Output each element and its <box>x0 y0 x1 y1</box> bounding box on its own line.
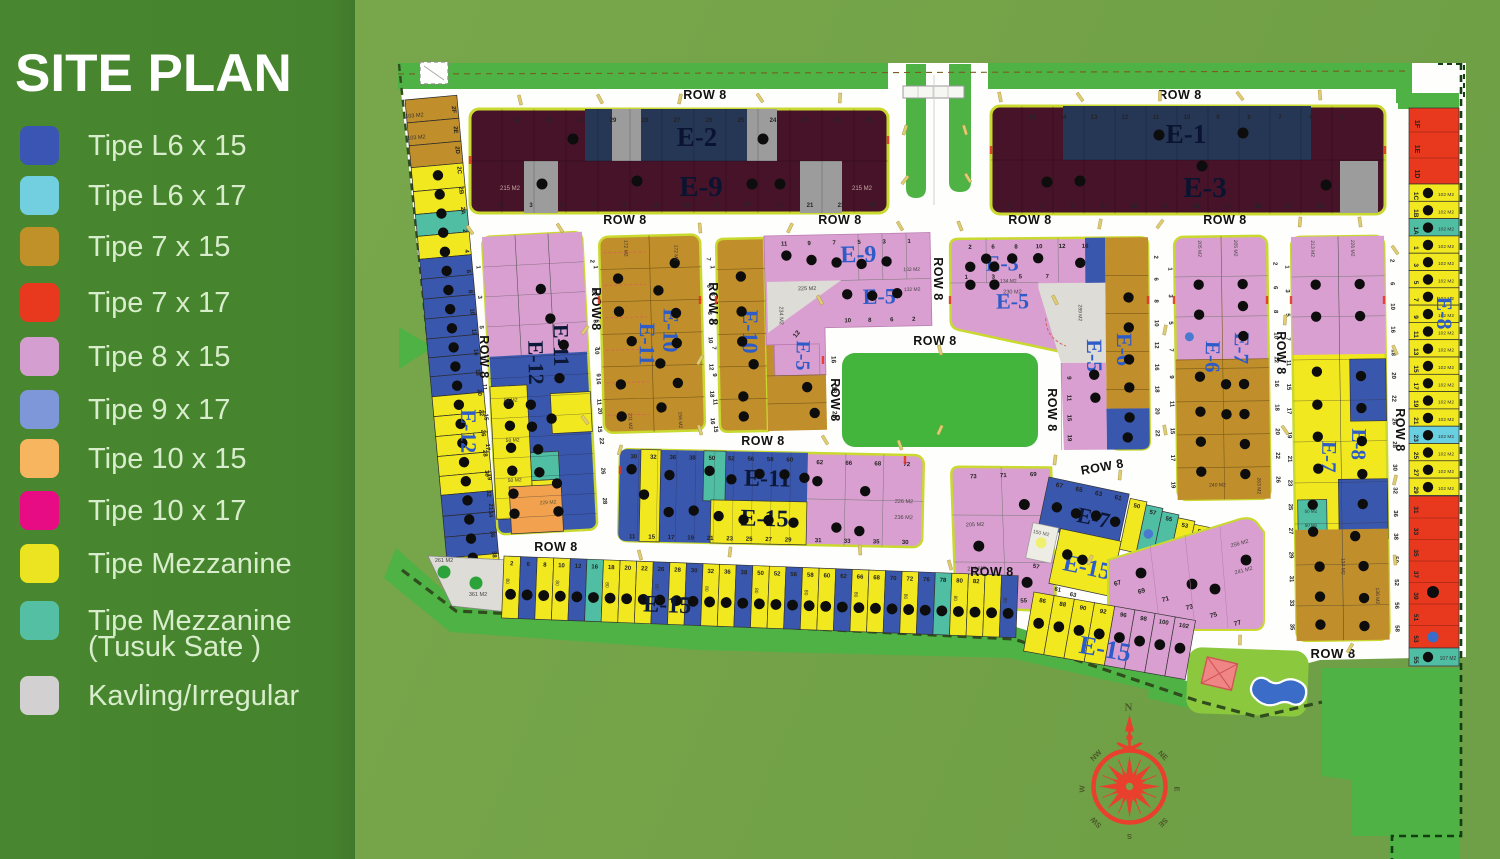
svg-text:E-15: E-15 <box>643 591 692 619</box>
svg-text:35: 35 <box>873 539 880 545</box>
svg-text:156 M2: 156 M2 <box>677 412 683 429</box>
svg-text:14: 14 <box>1060 115 1067 121</box>
svg-text:31: 31 <box>1288 576 1294 583</box>
svg-text:205 M2: 205 M2 <box>966 522 985 529</box>
svg-text:33: 33 <box>1288 600 1294 607</box>
svg-text:Kavling/Irregular: Kavling/Irregular <box>88 680 299 712</box>
svg-text:134 M2: 134 M2 <box>1339 558 1345 575</box>
svg-text:136 M2: 136 M2 <box>1374 587 1380 604</box>
svg-text:17: 17 <box>1412 383 1419 391</box>
svg-text:ROW 8: ROW 8 <box>1393 408 1407 451</box>
svg-text:36: 36 <box>488 531 495 539</box>
svg-text:E-6: E-6 <box>1200 341 1225 373</box>
svg-text:58: 58 <box>807 573 815 579</box>
svg-text:ROW 8: ROW 8 <box>741 434 784 448</box>
svg-text:16: 16 <box>1153 364 1159 371</box>
svg-text:31: 31 <box>815 538 822 544</box>
svg-text:56: 56 <box>747 457 754 463</box>
svg-text:32: 32 <box>1392 487 1398 494</box>
svg-text:Tipe 7 x 15: Tipe 7 x 15 <box>88 231 230 263</box>
svg-text:50 M2: 50 M2 <box>1305 523 1318 528</box>
svg-text:27: 27 <box>1412 469 1419 477</box>
svg-text:172 M2: 172 M2 <box>622 240 628 257</box>
svg-text:16: 16 <box>591 564 599 570</box>
svg-text:80: 80 <box>603 582 609 588</box>
svg-text:80: 80 <box>1002 597 1008 603</box>
svg-text:Tipe 10 x 15: Tipe 10 x 15 <box>88 443 247 475</box>
svg-text:66: 66 <box>857 575 865 581</box>
svg-text:22: 22 <box>598 438 604 446</box>
svg-text:32: 32 <box>650 455 657 461</box>
svg-text:30: 30 <box>578 118 585 124</box>
svg-text:1E: 1E <box>1413 145 1420 154</box>
svg-text:12: 12 <box>575 564 583 570</box>
svg-text:25: 25 <box>869 203 876 209</box>
svg-text:12: 12 <box>707 364 713 371</box>
svg-text:11: 11 <box>1168 401 1174 408</box>
svg-text:22: 22 <box>1154 430 1160 437</box>
svg-text:80: 80 <box>902 594 908 600</box>
svg-text:2F: 2F <box>450 106 457 114</box>
svg-text:225 M2: 225 M2 <box>798 286 816 292</box>
svg-text:69: 69 <box>1030 472 1038 478</box>
svg-text:56: 56 <box>790 572 798 578</box>
svg-text:30: 30 <box>1391 464 1397 471</box>
svg-text:205 M2: 205 M2 <box>1196 240 1202 257</box>
svg-text:10: 10 <box>1153 320 1159 327</box>
svg-text:25: 25 <box>746 537 753 543</box>
svg-text:132 M2: 132 M2 <box>904 287 921 293</box>
svg-text:20: 20 <box>1390 372 1396 379</box>
svg-text:80: 80 <box>504 578 510 584</box>
svg-text:76: 76 <box>923 577 931 583</box>
svg-text:30: 30 <box>630 454 637 460</box>
svg-text:19: 19 <box>1412 400 1419 408</box>
svg-text:35: 35 <box>1412 549 1419 557</box>
svg-text:10: 10 <box>707 337 713 344</box>
svg-text:W: W <box>1078 785 1087 793</box>
svg-text:29: 29 <box>610 118 617 124</box>
svg-text:36: 36 <box>669 455 676 461</box>
svg-text:30: 30 <box>902 540 909 546</box>
svg-text:38: 38 <box>689 455 696 461</box>
svg-text:102 M2: 102 M2 <box>1438 261 1454 267</box>
svg-text:2B: 2B <box>457 186 464 195</box>
svg-text:34: 34 <box>487 510 494 518</box>
svg-text:15: 15 <box>1066 415 1072 422</box>
svg-text:ROW 8: ROW 8 <box>931 257 945 300</box>
svg-text:32: 32 <box>707 569 715 575</box>
svg-text:ROW 8: ROW 8 <box>1008 213 1051 227</box>
svg-text:ROW 8: ROW 8 <box>1203 213 1246 227</box>
svg-text:ROW 8: ROW 8 <box>913 334 956 348</box>
svg-text:23: 23 <box>1412 435 1419 443</box>
svg-text:11: 11 <box>1153 115 1160 121</box>
svg-text:229 M2: 229 M2 <box>540 499 557 506</box>
svg-text:21: 21 <box>1286 456 1292 463</box>
svg-text:S: S <box>1127 832 1132 841</box>
svg-text:E-12: E-12 <box>456 409 481 453</box>
svg-text:11: 11 <box>1065 395 1071 402</box>
svg-text:Tipe Mezzanine: Tipe Mezzanine <box>88 548 292 580</box>
svg-text:213 M2: 213 M2 <box>1309 240 1315 257</box>
svg-text:236 M2: 236 M2 <box>894 515 912 521</box>
svg-text:15: 15 <box>712 426 718 433</box>
svg-text:E-11: E-11 <box>635 323 660 366</box>
svg-text:21: 21 <box>707 536 714 542</box>
svg-text:38: 38 <box>740 570 748 576</box>
svg-text:17: 17 <box>1169 455 1175 462</box>
svg-text:240 M2: 240 M2 <box>1209 482 1226 488</box>
svg-text:102 M2: 102 M2 <box>1438 417 1454 423</box>
svg-text:26: 26 <box>1274 476 1280 483</box>
svg-text:211 M2: 211 M2 <box>627 413 633 430</box>
svg-text:12: 12 <box>1153 342 1159 349</box>
svg-text:23: 23 <box>726 536 733 542</box>
svg-text:78: 78 <box>940 578 948 584</box>
svg-text:23: 23 <box>1286 480 1292 487</box>
svg-text:27: 27 <box>1287 528 1293 535</box>
svg-text:25: 25 <box>1287 504 1293 511</box>
svg-text:2D: 2D <box>453 146 460 155</box>
svg-text:13: 13 <box>683 203 690 209</box>
svg-text:22: 22 <box>641 566 649 572</box>
svg-text:68: 68 <box>874 461 881 467</box>
svg-text:80: 80 <box>956 578 964 584</box>
svg-text:ROW 8: ROW 8 <box>828 378 842 421</box>
svg-text:Tipe 7 x 17: Tipe 7 x 17 <box>88 287 230 319</box>
svg-text:134 M2: 134 M2 <box>1000 278 1017 284</box>
svg-text:18: 18 <box>608 565 616 571</box>
svg-text:80: 80 <box>703 586 709 592</box>
svg-text:16: 16 <box>830 356 837 364</box>
svg-text:102 M2: 102 M2 <box>1438 279 1454 285</box>
svg-text:ROW 8: ROW 8 <box>970 565 1013 579</box>
svg-text:80: 80 <box>803 590 809 596</box>
svg-text:E-1: E-1 <box>1166 119 1207 149</box>
svg-text:1A: 1A <box>1412 226 1419 235</box>
svg-text:28: 28 <box>601 497 607 505</box>
svg-text:56: 56 <box>1393 602 1399 609</box>
svg-text:11: 11 <box>711 399 717 406</box>
svg-text:215 M2: 215 M2 <box>500 186 521 192</box>
svg-text:16: 16 <box>595 378 601 386</box>
svg-text:15: 15 <box>648 535 655 541</box>
svg-text:80: 80 <box>852 592 858 598</box>
svg-text:5: 5 <box>1412 281 1419 285</box>
svg-text:SITE PLAN: SITE PLAN <box>15 44 292 103</box>
svg-text:1F: 1F <box>1413 120 1420 129</box>
svg-text:25: 25 <box>738 118 745 124</box>
svg-text:17: 17 <box>1285 408 1291 415</box>
svg-text:28: 28 <box>674 568 682 574</box>
svg-text:53: 53 <box>1412 635 1419 643</box>
svg-text:11: 11 <box>781 241 788 247</box>
svg-text:50: 50 <box>708 456 715 462</box>
svg-text:15: 15 <box>596 426 602 433</box>
svg-text:15: 15 <box>1029 115 1036 121</box>
svg-text:1: 1 <box>1412 246 1419 250</box>
svg-text:E-5: E-5 <box>1082 339 1107 372</box>
svg-text:11: 11 <box>629 534 636 540</box>
svg-text:Tipe 8 x 15: Tipe 8 x 15 <box>88 341 230 373</box>
svg-text:29: 29 <box>785 537 792 543</box>
svg-text:50 M2: 50 M2 <box>506 437 520 444</box>
svg-text:16: 16 <box>1273 380 1279 387</box>
svg-text:234 M2: 234 M2 <box>777 306 783 324</box>
svg-text:E-5: E-5 <box>791 340 813 370</box>
svg-text:11: 11 <box>595 399 601 406</box>
svg-text:27: 27 <box>765 537 772 543</box>
svg-text:ROW 8: ROW 8 <box>477 335 491 378</box>
svg-text:E-9: E-9 <box>679 171 723 203</box>
svg-text:16: 16 <box>709 418 715 425</box>
svg-text:10: 10 <box>468 308 475 316</box>
svg-text:16: 16 <box>1224 204 1231 210</box>
svg-text:132 M2: 132 M2 <box>903 267 920 273</box>
svg-text:361 M2: 361 M2 <box>469 592 487 598</box>
svg-text:52: 52 <box>728 456 735 462</box>
svg-text:102 M2: 102 M2 <box>1438 348 1454 354</box>
svg-text:26: 26 <box>599 468 605 476</box>
svg-text:102 M2: 102 M2 <box>1438 434 1454 440</box>
svg-text:102 M2: 102 M2 <box>1438 400 1454 406</box>
svg-text:Tipe L6 x 15: Tipe L6 x 15 <box>88 130 247 162</box>
svg-text:10: 10 <box>1036 244 1043 250</box>
svg-text:51: 51 <box>1412 614 1419 622</box>
svg-text:Tipe 10 x 17: Tipe 10 x 17 <box>88 495 247 527</box>
svg-text:(Tusuk Sate ): (Tusuk Sate ) <box>88 631 261 663</box>
svg-text:22: 22 <box>834 118 841 124</box>
svg-text:19: 19 <box>776 203 783 209</box>
svg-text:16: 16 <box>1082 244 1089 250</box>
svg-text:9: 9 <box>1412 315 1419 319</box>
svg-text:E-8: E-8 <box>1432 297 1457 330</box>
svg-text:30: 30 <box>691 568 699 574</box>
svg-text:16: 16 <box>1389 326 1395 333</box>
svg-text:80: 80 <box>653 584 659 590</box>
svg-text:11: 11 <box>1412 331 1419 338</box>
svg-text:3: 3 <box>1412 263 1419 267</box>
svg-text:62: 62 <box>840 574 848 580</box>
svg-text:20: 20 <box>596 408 602 416</box>
svg-text:38: 38 <box>490 551 497 559</box>
svg-text:31: 31 <box>1412 506 1419 514</box>
svg-text:18: 18 <box>1255 204 1262 210</box>
svg-text:102 M2: 102 M2 <box>1438 227 1454 233</box>
svg-text:12: 12 <box>1162 204 1169 210</box>
svg-text:15: 15 <box>1285 384 1291 391</box>
svg-text:12: 12 <box>1122 115 1129 121</box>
svg-text:25: 25 <box>1412 452 1419 460</box>
svg-text:23: 23 <box>838 203 845 209</box>
svg-text:58: 58 <box>767 457 774 463</box>
svg-text:31: 31 <box>546 118 553 124</box>
svg-text:50 M2: 50 M2 <box>504 397 518 404</box>
svg-text:80: 80 <box>753 588 759 594</box>
svg-text:29: 29 <box>1412 486 1419 494</box>
svg-text:26: 26 <box>658 567 666 573</box>
svg-text:230 M2: 230 M2 <box>1003 289 1021 295</box>
svg-text:22: 22 <box>1317 204 1324 210</box>
svg-text:62: 62 <box>816 460 823 466</box>
svg-text:Tipe L6 x 17: Tipe L6 x 17 <box>88 180 247 212</box>
svg-text:263 M2: 263 M2 <box>1255 477 1261 494</box>
svg-text:226 M2: 226 M2 <box>1349 240 1355 257</box>
svg-text:289 M2: 289 M2 <box>1077 305 1083 322</box>
svg-text:82: 82 <box>973 579 981 585</box>
svg-text:215 M2: 215 M2 <box>852 186 873 192</box>
svg-text:80: 80 <box>952 595 958 601</box>
svg-text:19: 19 <box>687 535 694 541</box>
svg-text:15: 15 <box>714 203 721 209</box>
svg-text:18: 18 <box>708 391 714 398</box>
svg-text:102 M2: 102 M2 <box>1438 330 1454 336</box>
svg-text:66: 66 <box>845 461 852 467</box>
svg-text:21: 21 <box>866 118 873 124</box>
svg-text:19: 19 <box>1169 482 1175 489</box>
svg-text:ROW 8: ROW 8 <box>1045 388 1059 431</box>
svg-text:ROW 8: ROW 8 <box>683 88 726 102</box>
svg-text:58: 58 <box>1393 625 1399 632</box>
svg-text:60: 60 <box>786 457 793 463</box>
svg-text:19: 19 <box>485 473 491 481</box>
svg-text:10: 10 <box>558 563 566 569</box>
svg-text:17: 17 <box>484 444 490 452</box>
svg-text:102 M2: 102 M2 <box>1438 244 1454 250</box>
svg-text:50 M2: 50 M2 <box>508 477 522 484</box>
svg-text:32: 32 <box>514 118 521 124</box>
svg-text:N: N <box>1125 702 1133 714</box>
svg-text:21: 21 <box>807 203 814 209</box>
svg-text:18: 18 <box>1153 386 1159 393</box>
svg-text:80: 80 <box>554 580 560 586</box>
svg-text:24: 24 <box>770 118 777 124</box>
svg-text:39: 39 <box>1412 592 1419 600</box>
svg-text:38: 38 <box>1392 533 1398 540</box>
svg-text:ROW 8: ROW 8 <box>1274 331 1288 374</box>
svg-text:102 M2: 102 M2 <box>1438 382 1454 388</box>
svg-text:10: 10 <box>1131 204 1138 210</box>
svg-text:20: 20 <box>1153 408 1159 415</box>
svg-text:172 M2: 172 M2 <box>672 245 678 262</box>
svg-text:52: 52 <box>1393 579 1399 586</box>
svg-text:15: 15 <box>1169 428 1175 435</box>
svg-text:261 M2: 261 M2 <box>435 558 453 564</box>
svg-text:102 M2: 102 M2 <box>1438 452 1454 458</box>
svg-text:10: 10 <box>844 318 851 324</box>
svg-text:17: 17 <box>668 535 675 541</box>
svg-text:E-3: E-3 <box>1183 172 1227 204</box>
svg-text:19: 19 <box>1066 435 1072 442</box>
svg-text:1C: 1C <box>1412 192 1419 201</box>
svg-text:32: 32 <box>485 490 492 498</box>
svg-text:13: 13 <box>1412 348 1419 356</box>
svg-text:68: 68 <box>873 575 881 581</box>
svg-text:37: 37 <box>1412 571 1419 579</box>
svg-text:17: 17 <box>745 203 752 209</box>
svg-text:226 M2: 226 M2 <box>895 499 913 505</box>
svg-text:36: 36 <box>1392 510 1398 517</box>
svg-text:15: 15 <box>1412 365 1419 373</box>
svg-text:21: 21 <box>1412 417 1419 425</box>
svg-text:107 M2: 107 M2 <box>1440 656 1457 662</box>
svg-text:12: 12 <box>1059 244 1066 250</box>
svg-text:29: 29 <box>1287 552 1293 559</box>
svg-text:ROW 8: ROW 8 <box>603 213 646 227</box>
svg-text:ROW 8: ROW 8 <box>534 540 577 554</box>
svg-text:14: 14 <box>1193 204 1200 210</box>
svg-text:72: 72 <box>906 576 914 582</box>
svg-text:18: 18 <box>1273 404 1279 411</box>
svg-text:2A: 2A <box>459 207 466 216</box>
svg-text:ROW 8: ROW 8 <box>1158 88 1201 102</box>
svg-text:102 M2: 102 M2 <box>1438 365 1454 371</box>
svg-text:1B: 1B <box>1412 209 1419 218</box>
svg-text:73: 73 <box>970 474 978 480</box>
svg-text:E-2: E-2 <box>677 122 718 152</box>
svg-text:E: E <box>1173 786 1182 791</box>
svg-text:28: 28 <box>642 118 649 124</box>
svg-text:2E: 2E <box>452 126 459 134</box>
svg-text:11: 11 <box>652 203 659 209</box>
svg-text:20: 20 <box>624 566 632 572</box>
svg-text:2C: 2C <box>455 166 462 175</box>
svg-text:71: 71 <box>1000 473 1008 479</box>
svg-text:11: 11 <box>481 384 487 391</box>
svg-text:102 M2: 102 M2 <box>1438 209 1454 215</box>
svg-text:50: 50 <box>757 571 765 577</box>
svg-text:7: 7 <box>1412 298 1419 302</box>
svg-text:33: 33 <box>1412 528 1419 536</box>
svg-text:1D: 1D <box>1413 170 1420 179</box>
svg-text:E-12: E-12 <box>523 340 549 384</box>
svg-text:10: 10 <box>1389 303 1395 310</box>
svg-text:35: 35 <box>1288 624 1294 631</box>
svg-text:13: 13 <box>1091 115 1098 121</box>
svg-text:36: 36 <box>724 569 732 575</box>
svg-text:55: 55 <box>1412 656 1419 664</box>
svg-text:20: 20 <box>1286 204 1293 210</box>
svg-text:ROW 8: ROW 8 <box>818 213 861 227</box>
svg-text:22: 22 <box>1390 395 1396 402</box>
svg-text:60: 60 <box>823 573 831 579</box>
svg-text:ROW 8: ROW 8 <box>589 287 603 330</box>
svg-text:55: 55 <box>1020 598 1028 604</box>
svg-text:23: 23 <box>802 118 809 124</box>
svg-text:70: 70 <box>890 576 898 582</box>
svg-text:Tipe 9 x 17: Tipe 9 x 17 <box>88 394 230 426</box>
svg-text:50 M2: 50 M2 <box>1305 509 1318 514</box>
svg-text:102 M2: 102 M2 <box>1438 486 1454 492</box>
svg-text:21: 21 <box>487 503 493 511</box>
svg-text:22: 22 <box>1274 452 1280 459</box>
svg-text:ROW 8: ROW 8 <box>706 282 720 325</box>
svg-text:33: 33 <box>844 539 851 545</box>
svg-text:205 M2: 205 M2 <box>1232 240 1238 257</box>
svg-text:52: 52 <box>774 571 782 577</box>
svg-text:102 M2: 102 M2 <box>1438 192 1454 198</box>
svg-text:102 M2: 102 M2 <box>1438 469 1454 475</box>
svg-text:12: 12 <box>470 328 477 336</box>
svg-text:15: 15 <box>482 414 488 422</box>
svg-text:20: 20 <box>1274 428 1280 435</box>
